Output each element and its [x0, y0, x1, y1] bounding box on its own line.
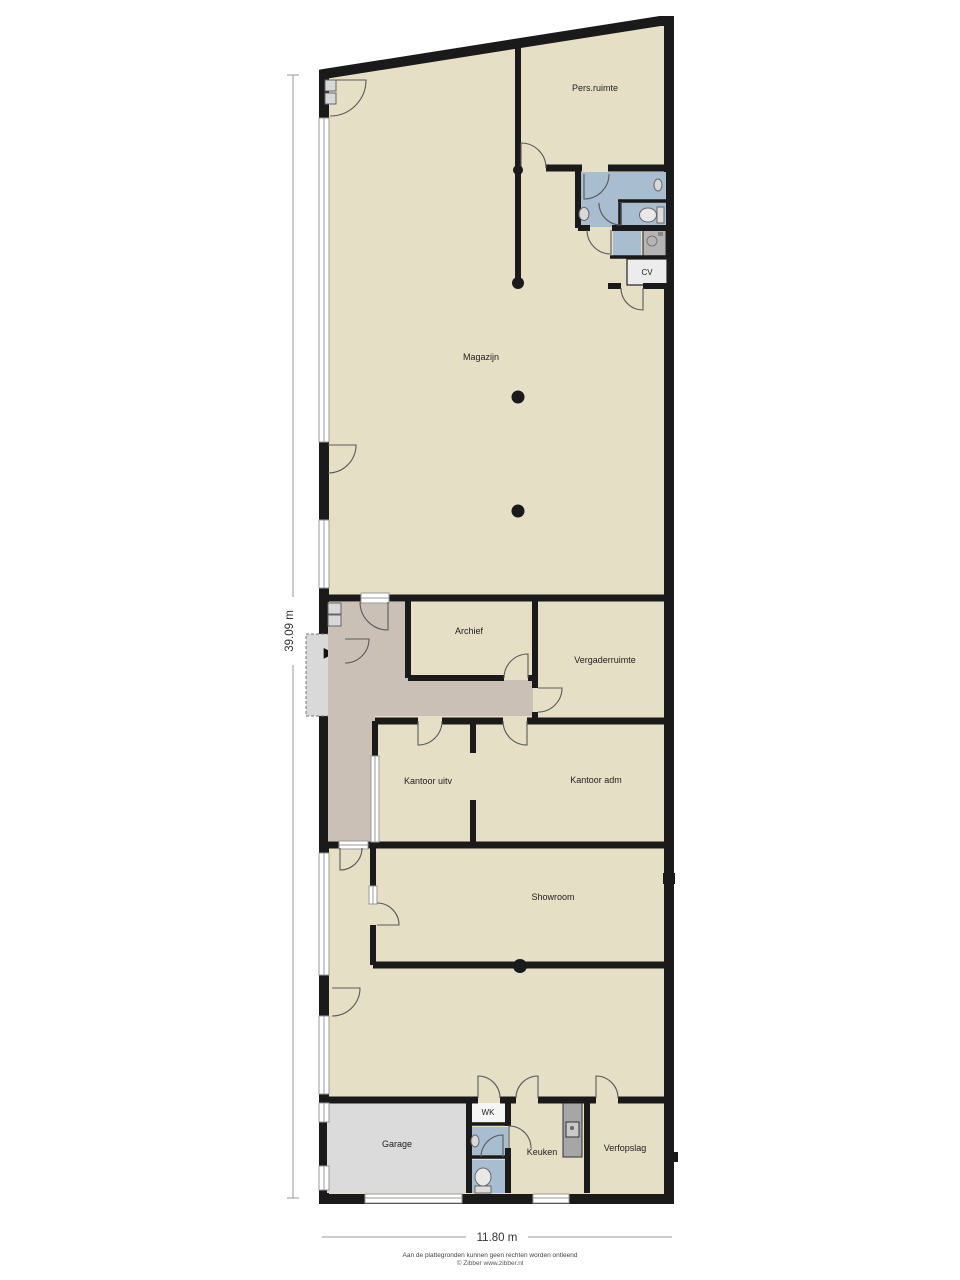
column-dot	[513, 165, 523, 175]
column-dot	[512, 277, 524, 289]
column-dot	[512, 391, 525, 404]
room-label-kantoor-uitv: Kantoor uitv	[404, 776, 453, 786]
toilet-icon	[475, 1168, 491, 1186]
room-label-kantoor-adm: Kantoor adm	[570, 775, 622, 785]
washer-detail	[658, 232, 663, 236]
wall-notch-right-lower	[666, 1152, 678, 1162]
room-label-wk: WK	[482, 1108, 496, 1117]
sink-icon	[471, 1135, 479, 1147]
meter-box-icon	[325, 80, 336, 91]
room-label-magazijn: Magazijn	[463, 352, 499, 362]
column-dot	[513, 959, 527, 973]
floorplan-drawing: ▶	[0, 0, 960, 1280]
room-label-verfopslag: Verfopslag	[604, 1143, 647, 1153]
meter-box-icon	[325, 93, 336, 104]
toilet-icon	[640, 208, 657, 222]
room-label-showroom: Showroom	[531, 892, 574, 902]
sink-icon	[579, 208, 589, 221]
toilet-tank	[657, 207, 664, 223]
room-label-pers-ruimte: Pers.ruimte	[572, 83, 618, 93]
footer-disclaimer: Aan de plattegronden kunnen geen rechten…	[403, 1252, 578, 1259]
toilet-tank	[475, 1186, 491, 1193]
meter-box-icon	[328, 615, 341, 626]
room-label-keuken: Keuken	[527, 1147, 558, 1157]
floorplan-page: ▶	[0, 0, 960, 1280]
room-label-vergaderruimte: Vergaderruimte	[574, 655, 636, 665]
room-shower-floor	[613, 231, 641, 256]
kitchen-faucet-icon	[570, 1126, 574, 1130]
dimension-width-label: 11.80 m	[477, 1232, 518, 1244]
column-dot	[512, 505, 525, 518]
room-label-cv: CV	[641, 268, 653, 277]
footer: Aan de plattegronden kunnen geen rechten…	[403, 1252, 578, 1267]
room-label-archief: Archief	[455, 626, 484, 636]
dimension-height-label: 39.09 m	[284, 610, 296, 652]
footer-credit: © Zibber www.zibber.nl	[457, 1259, 524, 1267]
urinal-icon	[654, 179, 662, 191]
wall-notch-right-upper	[663, 873, 675, 884]
meter-box-icon	[328, 603, 341, 614]
room-label-garage: Garage	[382, 1139, 412, 1149]
